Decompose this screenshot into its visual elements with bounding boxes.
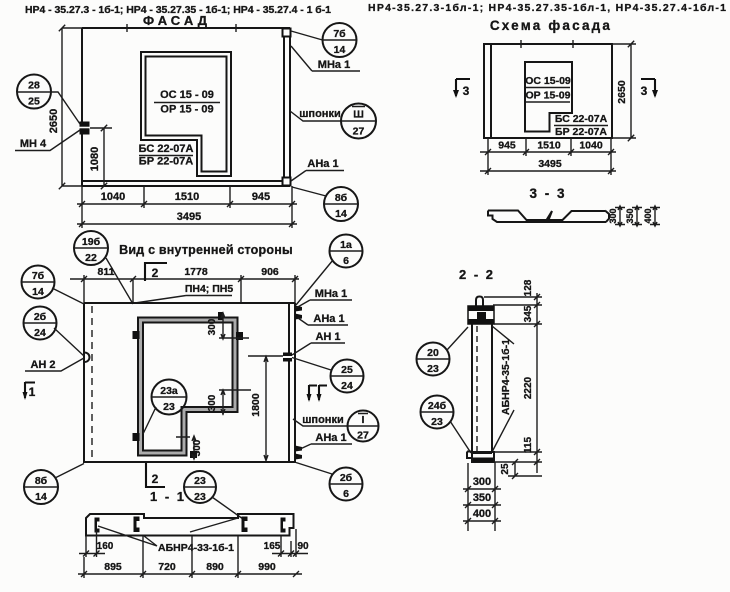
svg-text:3495: 3495 <box>177 211 201 223</box>
svg-text:ОС 15-09: ОС 15-09 <box>525 75 571 87</box>
svg-text:2650: 2650 <box>616 80 628 104</box>
svg-text:24: 24 <box>341 380 353 392</box>
svg-text:АН 2: АН 2 <box>30 359 55 371</box>
svg-text:300: 300 <box>473 476 491 488</box>
svg-text:АНа 1: АНа 1 <box>315 432 346 444</box>
svg-text:115: 115 <box>523 436 534 453</box>
svg-text:2б: 2б <box>340 472 353 484</box>
svg-text:300: 300 <box>207 318 218 335</box>
svg-text:2б: 2б <box>34 311 47 323</box>
svg-text:шпонки: шпонки <box>299 108 340 120</box>
svg-text:1080: 1080 <box>89 147 101 171</box>
svg-text:БР 22-07А: БР 22-07А <box>139 156 193 168</box>
svg-text:990: 990 <box>258 561 276 573</box>
svg-text:14: 14 <box>35 491 47 503</box>
svg-text:24: 24 <box>34 327 46 339</box>
svg-text:3: 3 <box>463 84 470 98</box>
svg-text:1778: 1778 <box>184 266 208 278</box>
svg-text:811: 811 <box>98 266 115 278</box>
svg-text:300: 300 <box>192 439 203 456</box>
svg-text:906: 906 <box>261 266 279 278</box>
svg-text:3495: 3495 <box>538 158 562 170</box>
svg-text:165: 165 <box>264 541 281 552</box>
svg-text:14: 14 <box>334 44 346 56</box>
svg-text:25: 25 <box>341 364 353 376</box>
svg-text:1800: 1800 <box>250 393 262 417</box>
svg-text:6: 6 <box>343 255 349 267</box>
svg-text:Схема фасада: Схема фасада <box>490 18 612 33</box>
svg-text:7б: 7б <box>32 270 45 282</box>
svg-text:7б: 7б <box>333 28 346 40</box>
svg-text:27: 27 <box>357 430 369 442</box>
svg-text:345: 345 <box>523 305 534 322</box>
svg-text:24б: 24б <box>428 400 447 412</box>
svg-text:23: 23 <box>427 363 439 375</box>
svg-text:Ш: Ш <box>353 109 364 121</box>
svg-text:14: 14 <box>32 286 44 298</box>
svg-text:Вид с внутренней стороны: Вид с внутренней стороны <box>119 243 293 257</box>
svg-text:2650: 2650 <box>48 109 60 133</box>
svg-text:27: 27 <box>353 126 365 138</box>
svg-text:23: 23 <box>163 401 175 413</box>
svg-text:шпонки: шпонки <box>302 414 343 426</box>
svg-text:945: 945 <box>252 191 270 203</box>
svg-text:1040: 1040 <box>101 191 125 203</box>
svg-text:БС 22-07А: БС 22-07А <box>555 113 608 125</box>
svg-text:1040: 1040 <box>579 140 603 152</box>
svg-text:ФАСАД: ФАСАД <box>143 13 211 28</box>
svg-text:МНа 1: МНа 1 <box>318 59 350 71</box>
svg-text:23: 23 <box>431 416 443 428</box>
svg-text:3: 3 <box>641 84 648 98</box>
svg-text:160: 160 <box>97 541 114 552</box>
svg-text:19б: 19б <box>82 236 101 248</box>
svg-text:ОР 15-09: ОР 15-09 <box>526 90 571 102</box>
svg-text:1 - 1: 1 - 1 <box>150 489 186 504</box>
svg-text:25: 25 <box>500 463 511 475</box>
svg-text:1а: 1а <box>340 239 352 251</box>
svg-text:БС 22-07А: БС 22-07А <box>139 143 194 155</box>
svg-text:14: 14 <box>335 208 347 220</box>
svg-text:300: 300 <box>207 394 218 411</box>
svg-text:1510: 1510 <box>537 140 561 152</box>
svg-text:23а: 23а <box>160 385 178 397</box>
svg-text:1: 1 <box>29 385 36 399</box>
svg-text:ПН4; ПН5: ПН4; ПН5 <box>185 283 234 295</box>
svg-text:МН 4: МН 4 <box>20 138 47 150</box>
svg-text:2: 2 <box>152 266 159 280</box>
svg-text:28: 28 <box>28 80 40 92</box>
svg-text:945: 945 <box>498 140 516 152</box>
svg-text:МНа 1: МНа 1 <box>315 288 347 300</box>
svg-text:АНа 1: АНа 1 <box>313 313 344 325</box>
svg-text:895: 895 <box>104 561 122 573</box>
svg-text:8б: 8б <box>335 192 348 204</box>
svg-text:6: 6 <box>343 488 349 500</box>
svg-text:350: 350 <box>473 492 491 504</box>
svg-text:2: 2 <box>152 472 159 486</box>
svg-text:720: 720 <box>158 561 176 573</box>
svg-text:АБНР4-35-1б-1: АБНР4-35-1б-1 <box>500 339 512 415</box>
svg-text:22: 22 <box>85 252 97 264</box>
svg-text:128: 128 <box>523 279 534 296</box>
svg-text:300: 300 <box>608 208 618 223</box>
svg-text:890: 890 <box>206 561 224 573</box>
svg-text:400: 400 <box>643 208 653 223</box>
svg-text:1510: 1510 <box>175 191 199 203</box>
svg-text:350: 350 <box>625 208 635 223</box>
svg-text:3 - 3: 3 - 3 <box>529 186 566 201</box>
svg-text:25: 25 <box>28 96 40 108</box>
svg-text:2 - 2: 2 - 2 <box>459 267 495 282</box>
svg-text:400: 400 <box>473 508 491 520</box>
svg-text:АБНР4-33-1б-1: АБНР4-33-1б-1 <box>158 542 234 554</box>
svg-text:2220: 2220 <box>523 376 534 399</box>
svg-text:90: 90 <box>297 541 309 552</box>
svg-text:20: 20 <box>427 347 439 359</box>
svg-text:НР4-35.27.3-1бл-1; НР4-35.27.3: НР4-35.27.3-1бл-1; НР4-35.27.35-1бл-1, Н… <box>368 2 726 14</box>
svg-text:АНа 1: АНа 1 <box>307 158 338 170</box>
svg-text:ОС 15 - 09: ОС 15 - 09 <box>160 89 214 101</box>
svg-text:І: І <box>362 414 365 426</box>
svg-text:БР 22-07А: БР 22-07А <box>555 126 607 138</box>
svg-text:8б: 8б <box>35 475 48 487</box>
svg-text:23: 23 <box>194 491 206 503</box>
svg-text:ОР 15 - 09: ОР 15 - 09 <box>160 104 213 116</box>
svg-text:АН 1: АН 1 <box>315 331 340 343</box>
svg-text:23: 23 <box>194 475 206 487</box>
